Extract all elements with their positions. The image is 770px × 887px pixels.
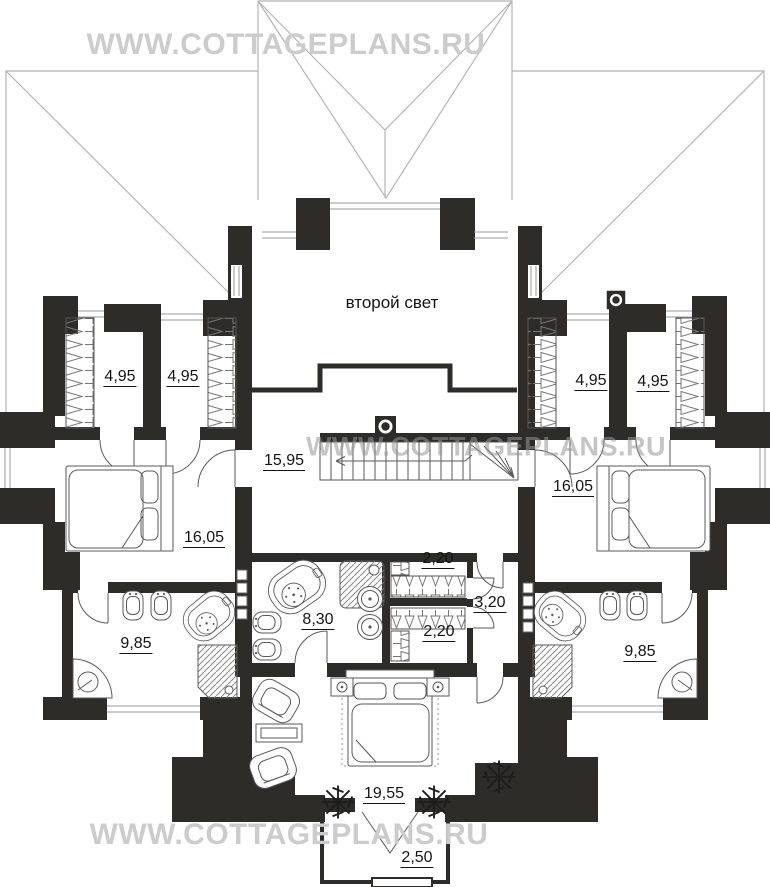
plant-icon [418, 786, 451, 819]
room-area-label-bedroom-right: 16,05 [552, 478, 594, 496]
floor-plan: WWW.COTTAGEPLANS.RU WWW.COTTAGEPLANS.RU … [0, 0, 770, 887]
room-area-label-balcony: 2,50 [400, 849, 433, 867]
jacuzzi-icon [527, 584, 593, 648]
room-area-label-closet-left-a: 4,95 [103, 368, 136, 386]
shower-icon [198, 645, 237, 698]
second-light-edge [252, 366, 517, 390]
room-area-label-bathroom-right: 9,85 [623, 643, 656, 661]
shower-icon [533, 645, 572, 698]
jacuzzi-icon [176, 584, 242, 648]
room-area-label-closet-center-top: 2,20 [421, 550, 454, 568]
bed-icon [597, 466, 710, 551]
roof-outline [6, 1, 764, 412]
watermark-bottom: WWW.COTTAGEPLANS.RU [90, 818, 489, 852]
corner-sink-icon [73, 659, 112, 698]
watermark-middle: WWW.COTTAGEPLANS.RU [306, 432, 666, 463]
entry-steps [372, 878, 432, 887]
bidet-icon [151, 591, 171, 620]
toilet-icon [253, 639, 281, 660]
room-area-label-bedroom-left: 16,05 [183, 529, 225, 547]
sink-icon [358, 587, 383, 612]
room-area-label-closet-right-a: 4,95 [574, 372, 607, 390]
room-area-label-hall-small: 3,20 [473, 594, 506, 612]
armchair-icon [248, 675, 303, 726]
room-area-label-closet-right-b: 4,95 [636, 373, 669, 391]
bidet-icon [627, 591, 647, 620]
room-area-label-closet-center-bottom: 2,20 [422, 623, 455, 641]
coffee-table-icon [256, 724, 302, 742]
bed-icon [342, 670, 438, 766]
toilet-icon [253, 612, 281, 633]
sink-icon [358, 615, 383, 640]
room-area-label-hall: 15,95 [263, 452, 305, 470]
plant-icon [322, 786, 355, 819]
plant-icon [483, 761, 516, 794]
bidet-icon [123, 591, 143, 620]
nightstand-icon [331, 678, 353, 696]
room-area-label-closet-left-b: 4,95 [166, 368, 199, 386]
column-icon [607, 291, 625, 309]
room-label-second-light: второй свет [346, 293, 439, 313]
corner-sink-icon [658, 659, 697, 698]
room-area-label-bedroom-center: 19,55 [363, 785, 405, 803]
room-area-label-bathroom-left: 9,85 [119, 635, 152, 653]
watermark-top: WWW.COTTAGEPLANS.RU [87, 28, 486, 62]
bed-icon [66, 466, 173, 551]
room-area-label-bathroom-center: 8,30 [301, 611, 334, 629]
nightstand-icon [427, 678, 449, 696]
bidet-icon [600, 591, 620, 620]
